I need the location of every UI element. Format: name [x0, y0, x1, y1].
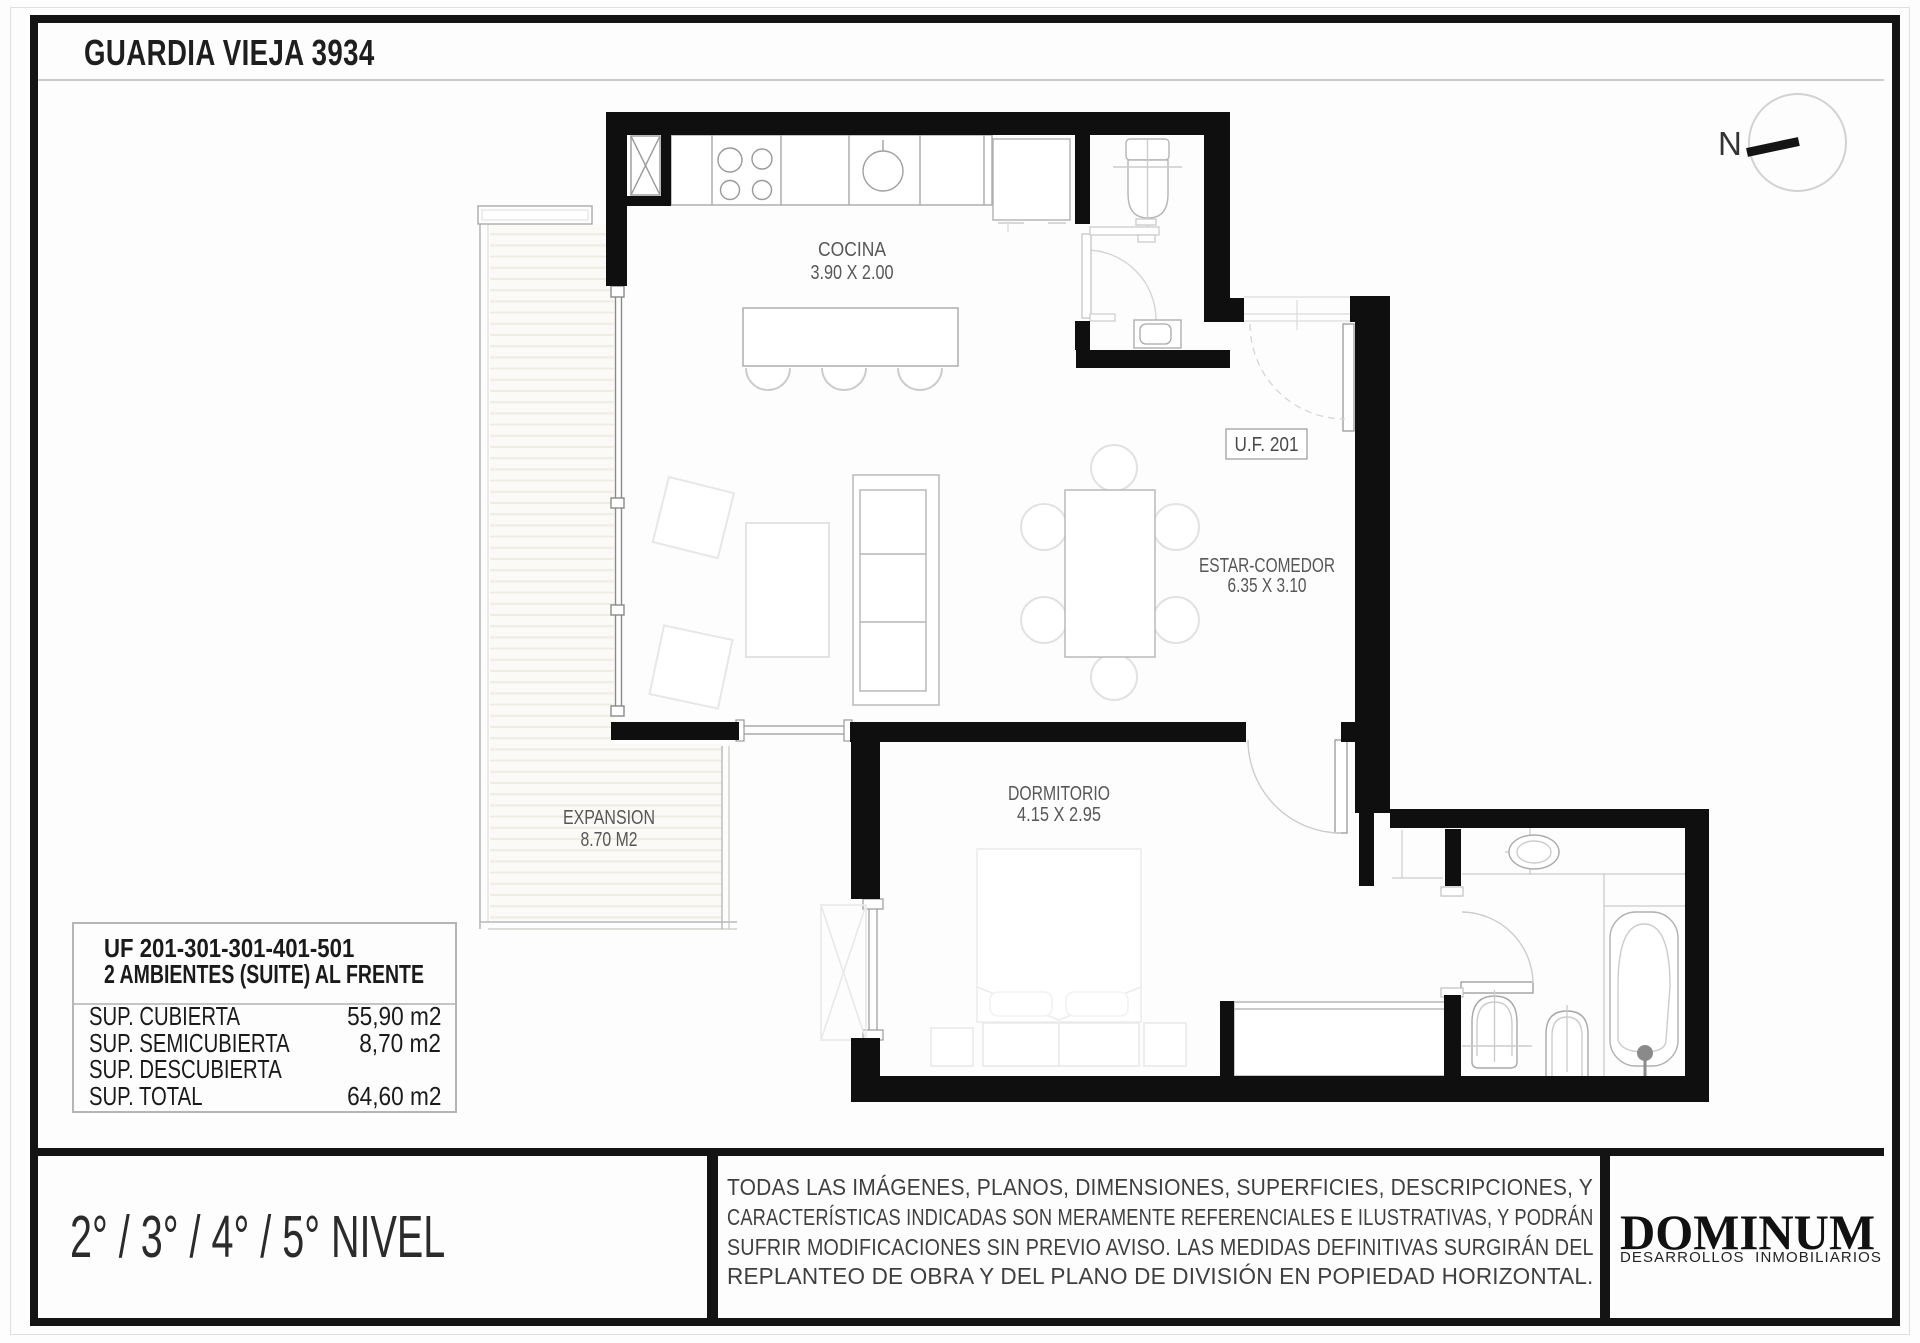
svg-text:EXPANSION: EXPANSION: [563, 807, 655, 829]
svg-text:8.70 M2: 8.70 M2: [581, 829, 638, 851]
svg-text:DORMITORIO: DORMITORIO: [1008, 783, 1110, 805]
svg-text:3.90 X 2.00: 3.90 X 2.00: [811, 262, 894, 284]
svg-text:6.35 X 3.10: 6.35 X 3.10: [1228, 575, 1307, 597]
svg-text:U.F. 201: U.F. 201: [1235, 434, 1299, 456]
svg-text:COCINA: COCINA: [818, 239, 887, 261]
svg-text:4.15 X 2.95: 4.15 X 2.95: [1017, 804, 1101, 826]
svg-text:ESTAR-COMEDOR: ESTAR-COMEDOR: [1199, 555, 1335, 577]
